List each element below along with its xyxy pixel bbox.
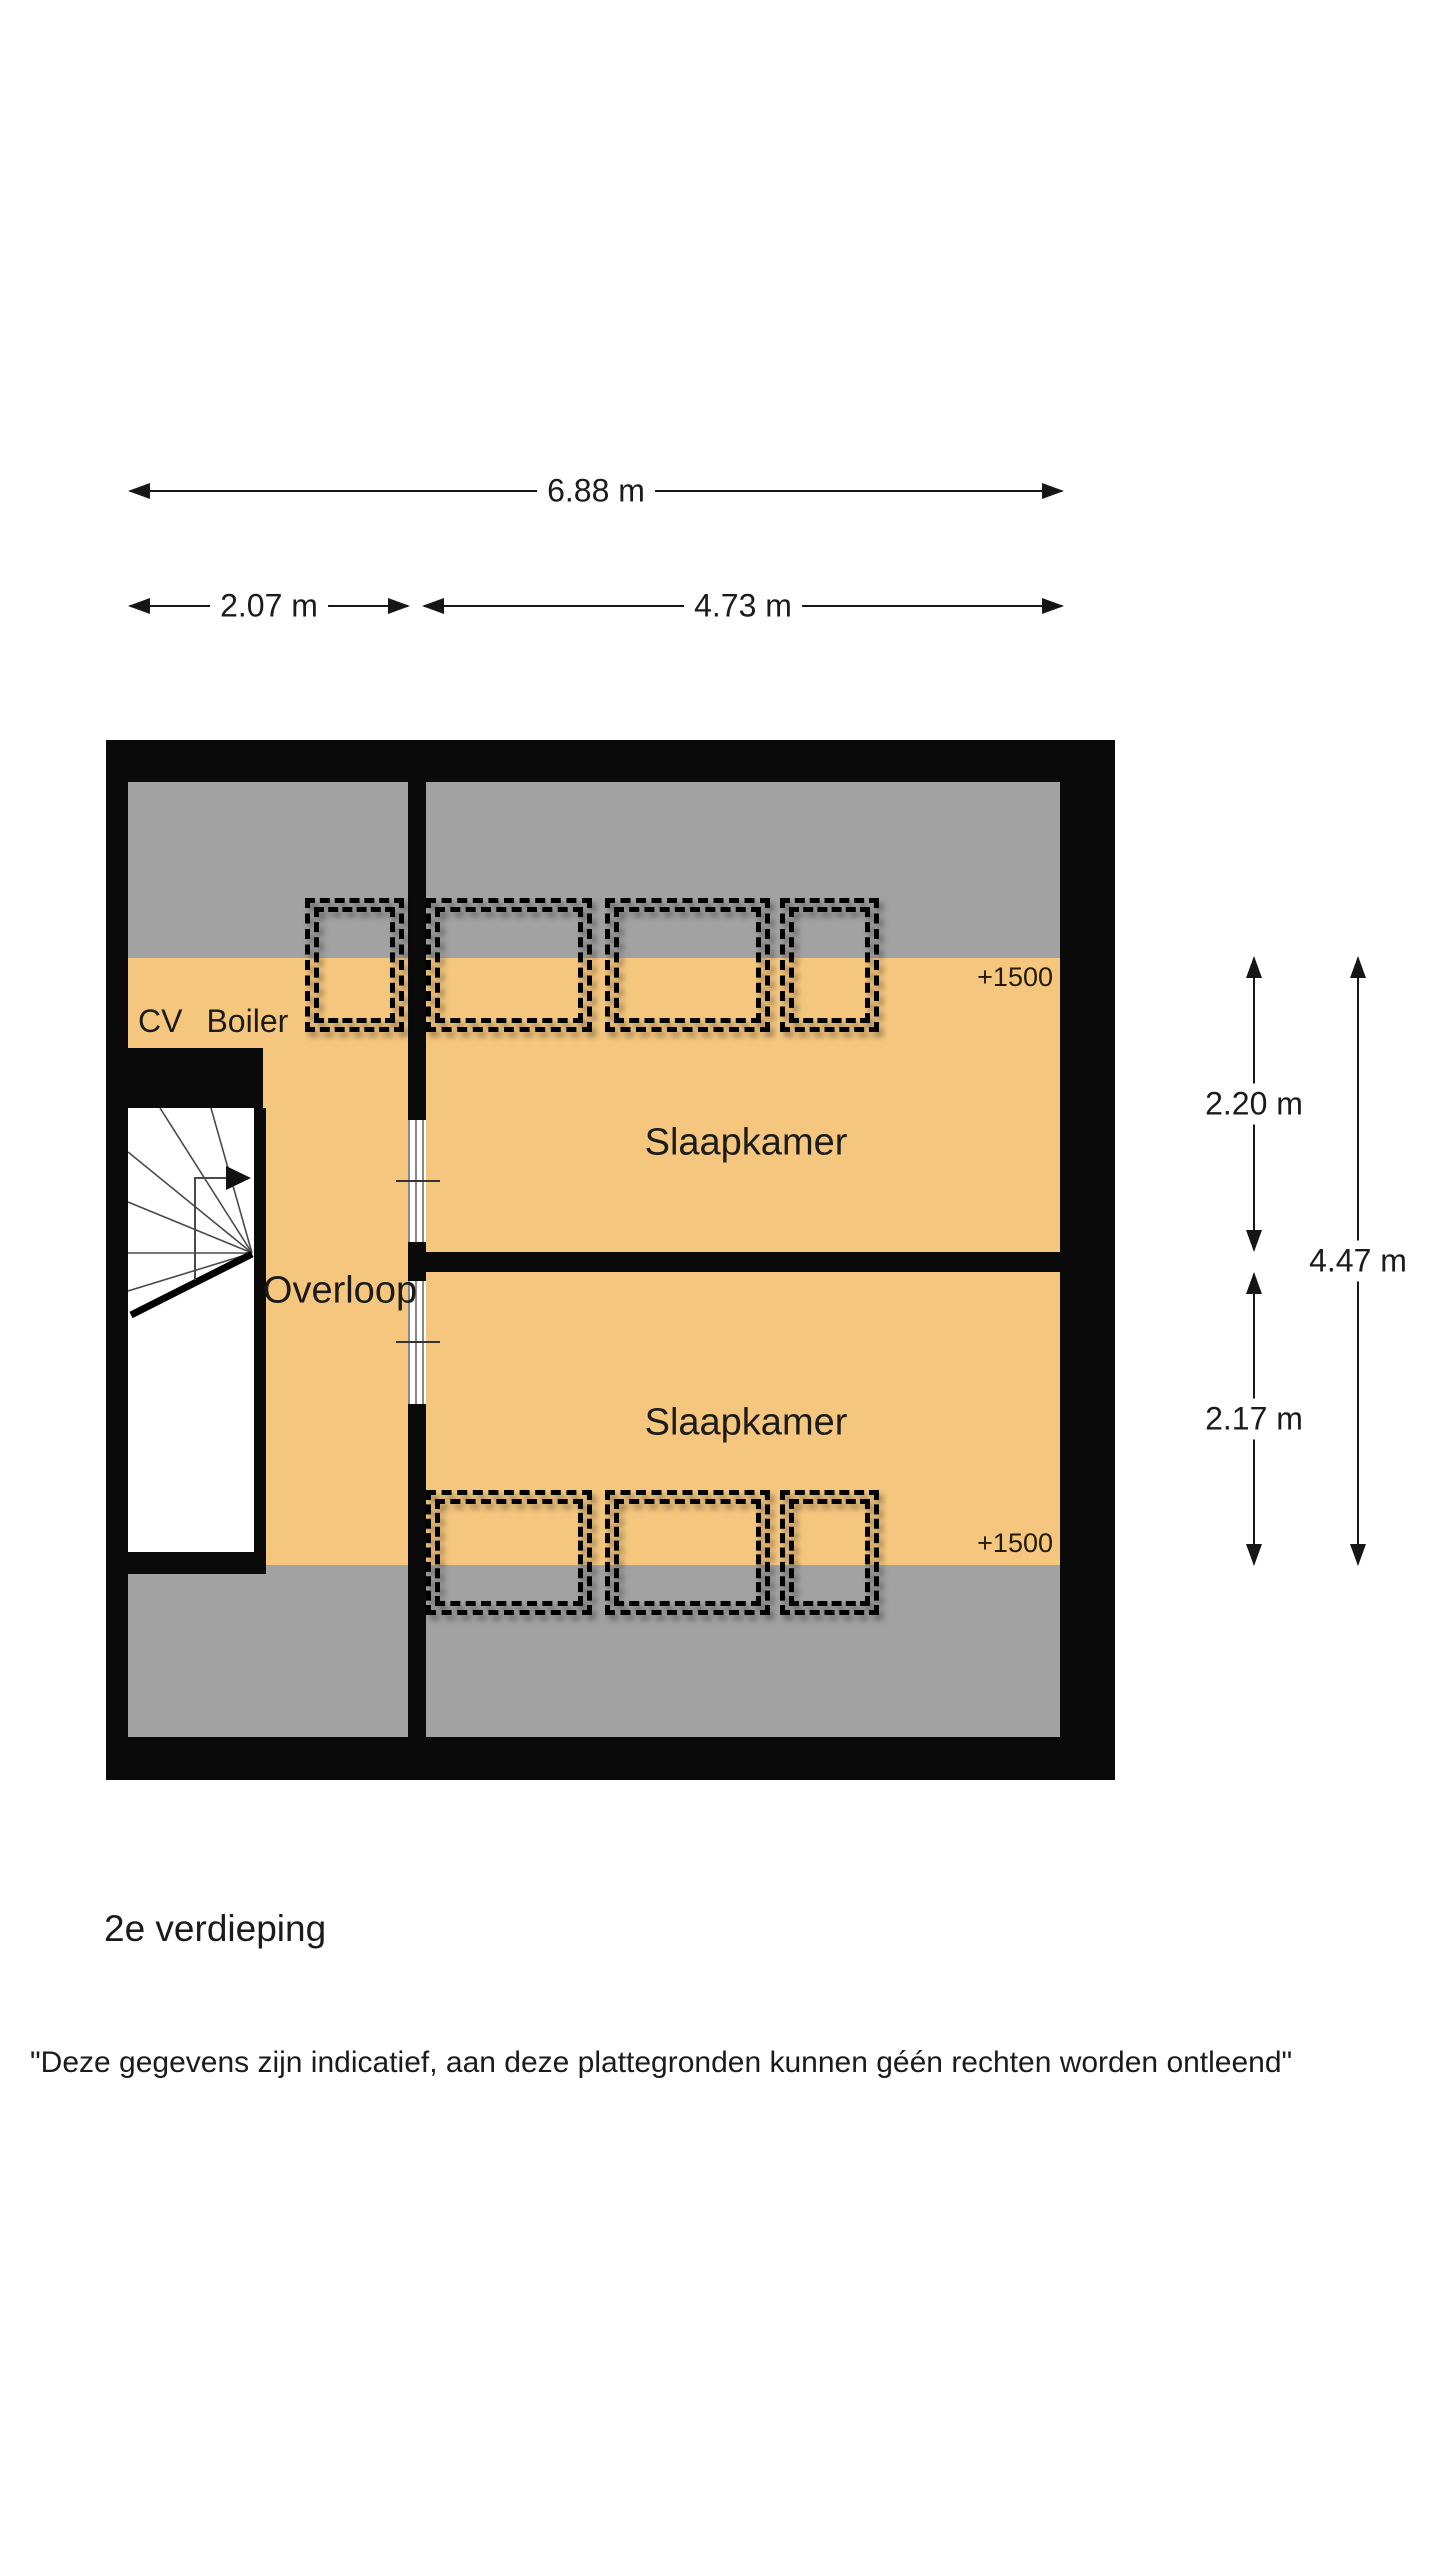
stairwell-right-wall — [254, 1108, 266, 1574]
arrow-down-icon — [1350, 1544, 1366, 1566]
arrow-left-icon — [128, 598, 150, 614]
roof-window-dashed — [605, 898, 770, 1032]
disclaimer-text: "Deze gegevens zijn indicatief, aan deze… — [30, 2046, 1292, 2080]
dimension-label-right-width: 4.73 m — [684, 586, 802, 627]
arrow-up-icon — [1350, 956, 1366, 978]
door-tick-top — [396, 1180, 440, 1182]
dimension-line-upper-height: 2.20 m — [1253, 958, 1255, 1250]
dimension-line-total-height: 4.47 m — [1357, 958, 1359, 1564]
floor-title: 2e verdieping — [104, 1908, 326, 1950]
arrow-down-icon — [1246, 1230, 1262, 1252]
height-marker-top: +1500 — [900, 962, 1053, 993]
roof-window-inner-outline — [614, 1499, 761, 1606]
arrow-right-icon — [1042, 483, 1064, 499]
room-label-bedroom-top: Slaapkamer — [645, 1122, 848, 1165]
room-label-bedroom-bottom: Slaapkamer — [645, 1402, 848, 1445]
dimension-label-left-width: 2.07 m — [210, 586, 328, 627]
dimension-label-lower-height: 2.17 m — [1195, 1399, 1313, 1440]
stairwell-bottom-wall — [128, 1552, 266, 1574]
roof-window-dashed — [605, 1490, 770, 1615]
roof-window-inner-outline — [314, 907, 395, 1023]
dimension-label-upper-height: 2.20 m — [1195, 1084, 1313, 1125]
arrow-right-icon — [388, 598, 410, 614]
arrow-left-icon — [128, 483, 150, 499]
door-tick-bottom — [396, 1341, 440, 1343]
roof-window-dashed — [780, 898, 879, 1032]
roof-window-inner-outline — [614, 907, 761, 1023]
roof-window-dashed — [305, 898, 404, 1032]
roof-window-dashed — [426, 898, 592, 1032]
dimension-line-lower-height: 2.17 m — [1253, 1274, 1255, 1564]
cv-closet-wall — [128, 1048, 263, 1108]
roof-window-dashed — [426, 1490, 592, 1615]
cv-label: CV — [138, 1003, 182, 1039]
height-marker-bottom: +1500 — [900, 1528, 1053, 1559]
roof-window-inner-outline — [435, 1499, 583, 1606]
roof-window-inner-outline — [435, 907, 583, 1023]
dimension-line-right-width: 4.73 m — [424, 605, 1062, 607]
boiler-label: Boiler — [206, 1003, 288, 1039]
roof-window-dashed — [780, 1490, 879, 1615]
dimension-label-total-width: 6.88 m — [537, 471, 655, 512]
arrow-right-icon — [1042, 598, 1064, 614]
cv-boiler-label: CVBoiler — [138, 1003, 288, 1040]
room-label-landing: Overloop — [263, 1270, 417, 1313]
arrow-up-icon — [1246, 1272, 1262, 1294]
roof-window-inner-outline — [789, 907, 870, 1023]
floorplan-page: 6.88 m 2.07 m 4.73 m — [0, 0, 1440, 2560]
arrow-left-icon — [422, 598, 444, 614]
stair-treads-drawing — [128, 1108, 254, 1552]
arrow-down-icon — [1246, 1544, 1262, 1566]
dimension-line-left-width: 2.07 m — [130, 605, 408, 607]
dimension-label-total-height: 4.47 m — [1299, 1241, 1417, 1282]
arrow-up-icon — [1246, 956, 1262, 978]
stair-direction-arrow-icon — [226, 1166, 251, 1190]
roof-window-inner-outline — [789, 1499, 870, 1606]
landing-low-headroom-zone-bottom — [128, 1565, 408, 1737]
dimension-line-total-width: 6.88 m — [130, 490, 1062, 492]
bedroom-divider-wall — [408, 1252, 1060, 1272]
